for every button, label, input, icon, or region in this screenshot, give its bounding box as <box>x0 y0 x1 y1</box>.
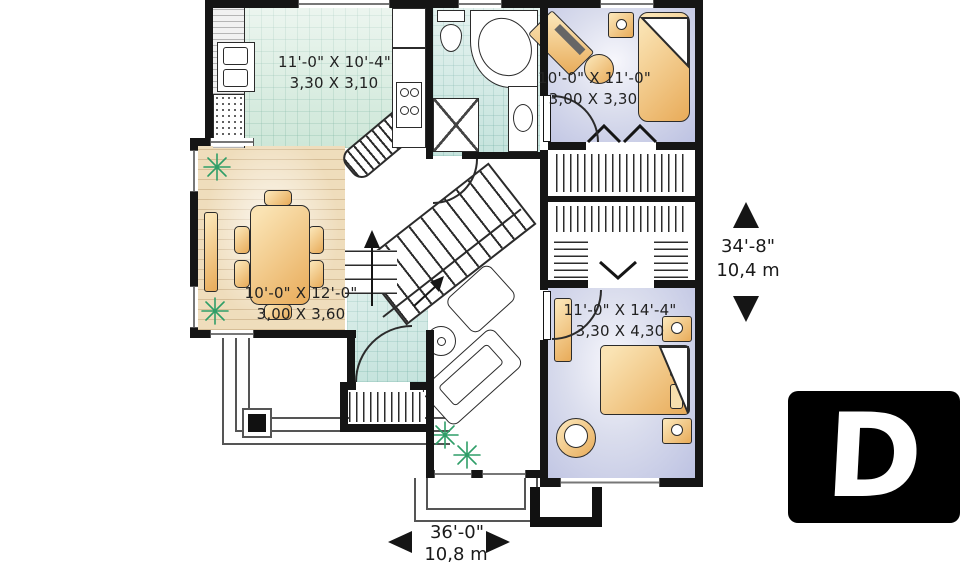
window <box>298 0 390 8</box>
kitchen-metric: 3,30 X 3,10 <box>278 73 390 94</box>
wall-bath-bottom <box>462 152 540 159</box>
floor-plan: 11'-0" X 10'-4" 3,30 X 3,10 10'-0" X 11'… <box>0 0 960 569</box>
stairs-direction-arrow-icon <box>408 268 452 312</box>
bedroom-bottom-metric: 3,30 X 4,30 <box>558 321 682 342</box>
bedroom-bottom-dimensions-label: 11'-0" X 14'-4" 3,30 X 4,30 <box>558 300 682 342</box>
window <box>190 286 198 328</box>
kitchen-fridge <box>392 8 426 48</box>
dining-chair <box>234 226 250 254</box>
stove-burner <box>400 88 409 97</box>
wall-closet-bottom <box>340 424 434 432</box>
overall-depth-metric: 10,4 m <box>712 260 784 281</box>
plant-icon <box>202 152 232 182</box>
window <box>190 150 198 192</box>
wall-front-b <box>410 382 434 390</box>
shower <box>433 98 479 152</box>
closet-rod-top <box>556 154 688 192</box>
bedroom-bottom-imperial: 11'-0" X 14'-4" <box>558 300 682 321</box>
lamp <box>616 19 627 30</box>
wall-bedroom-top-bottom-b <box>656 142 695 150</box>
bedroom-top-dimensions-label: 10'-0" X 11'-0" 3,00 X 3,30 <box>538 68 648 110</box>
closet-rod-mid <box>556 206 688 232</box>
kitchen-dimensions-label: 11'-0" X 10'-4" 3,30 X 3,10 <box>278 52 390 94</box>
stoop-inner <box>540 487 592 517</box>
wall-bedroom-bottom-top-a <box>548 280 588 288</box>
bed-blanket-fold <box>644 343 692 417</box>
stove-burner <box>410 106 419 115</box>
bifold-door-icon <box>596 260 640 280</box>
plant-icon <box>452 440 482 470</box>
wall-closet-divider <box>548 196 695 202</box>
wall-entry-left <box>347 338 355 382</box>
buffet <box>204 212 218 292</box>
dimension-arrow-up-icon <box>733 202 759 228</box>
dining-dimensions-label: 10'-0" X 12'-0" 3,00 X 3,60 <box>226 283 376 325</box>
toilet-tank <box>437 10 465 22</box>
round-chair-seat <box>564 424 588 448</box>
window <box>210 330 254 338</box>
window <box>560 478 660 487</box>
dining-metric: 3,00 X 3,60 <box>226 304 376 325</box>
bedroom-top-metric: 3,00 X 3,30 <box>538 89 648 110</box>
lamp <box>671 424 683 436</box>
porch-post <box>248 414 266 432</box>
bed-blanket-fold <box>638 12 692 70</box>
brand-logo: D <box>788 391 960 523</box>
kitchen-sink-basin <box>223 47 248 65</box>
wall-right <box>695 0 703 487</box>
overall-depth-imperial: 34'-8" <box>712 236 784 257</box>
dining-chair <box>264 190 292 206</box>
entry-steps-inner <box>426 478 526 510</box>
window <box>210 138 254 146</box>
dining-imperial: 10'-0" X 12'-0" <box>226 283 376 304</box>
entry-closet <box>349 392 425 422</box>
dimension-arrow-left-icon <box>388 531 412 553</box>
wall-bedroom-bottom-top-b <box>654 280 703 288</box>
wall-hall-right-upper <box>540 150 548 290</box>
wall-bedroom-top-bottom-a <box>548 142 586 150</box>
window <box>482 470 526 478</box>
wall-bath-left <box>426 8 433 159</box>
dimension-arrow-down-icon <box>733 296 759 322</box>
window <box>600 0 654 8</box>
wall-front-a <box>340 382 356 390</box>
kitchen-imperial: 11'-0" X 10'-4" <box>278 52 390 73</box>
closet-rod-right <box>654 238 688 278</box>
bedroom-top-imperial: 10'-0" X 11'-0" <box>538 68 648 89</box>
stove-burner <box>400 106 409 115</box>
door-leaf <box>543 291 551 340</box>
brand-logo-letter: D <box>823 399 925 515</box>
side-table-center <box>437 337 446 346</box>
wall-hall-right-lower <box>540 340 548 478</box>
window <box>458 0 502 8</box>
wall-living-left <box>426 330 434 478</box>
stove-burner <box>410 88 419 97</box>
wall-kitchen-left <box>205 0 213 146</box>
closet-rod-left <box>554 238 588 278</box>
vanity-sink <box>513 104 533 132</box>
dimension-arrow-right-icon <box>486 531 510 553</box>
window <box>434 470 472 478</box>
kitchen-sink-basin <box>223 69 248 87</box>
dining-chair <box>308 226 324 254</box>
